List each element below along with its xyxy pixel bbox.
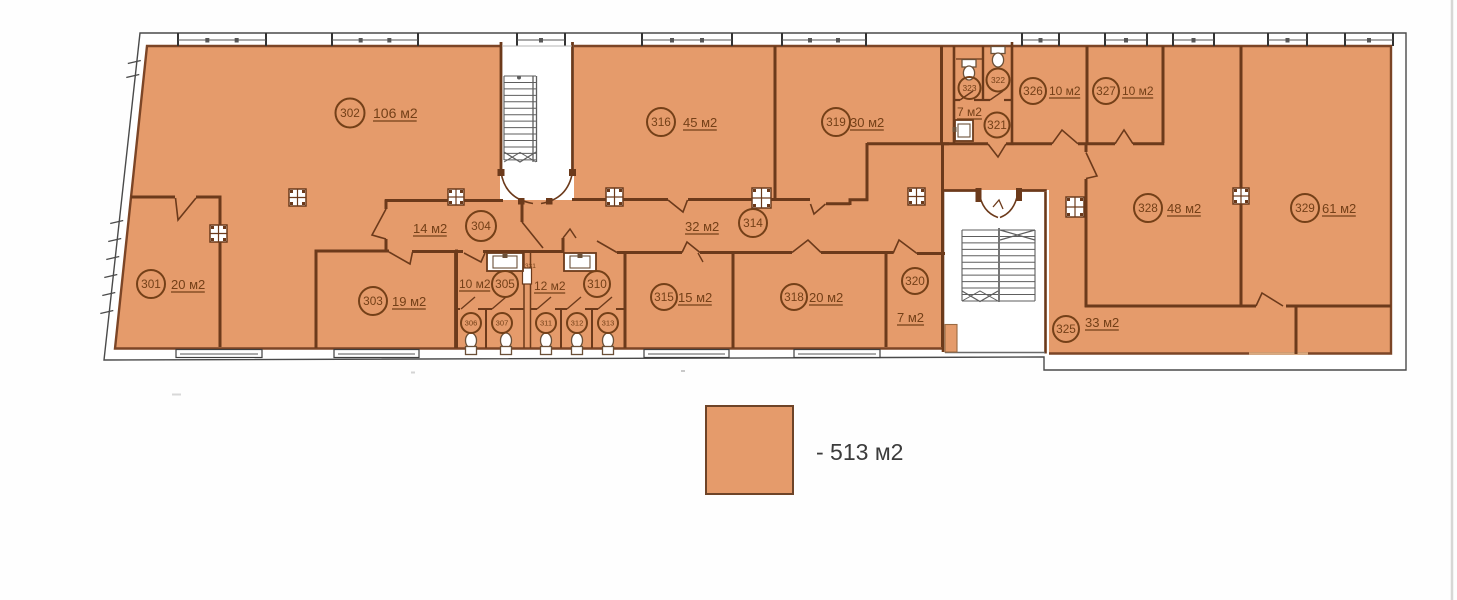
svg-text:10 м2: 10 м2	[1122, 84, 1154, 98]
svg-text:- 513 м2: - 513 м2	[816, 439, 903, 465]
svg-text:327: 327	[1096, 84, 1116, 98]
svg-text:310: 310	[587, 277, 607, 291]
svg-text:323: 323	[963, 83, 977, 93]
svg-text:19 м2: 19 м2	[392, 294, 426, 309]
svg-text:7 м2: 7 м2	[897, 310, 924, 325]
svg-text:14 м2: 14 м2	[413, 221, 447, 236]
svg-text:20 м2: 20 м2	[171, 277, 205, 292]
svg-text:326: 326	[1023, 84, 1043, 98]
svg-text:302: 302	[340, 106, 360, 120]
svg-text:322: 322	[991, 75, 1005, 85]
svg-text:15 м2: 15 м2	[678, 290, 712, 305]
svg-text:307: 307	[496, 319, 509, 328]
svg-text:325: 325	[1056, 322, 1076, 336]
svg-text:319: 319	[826, 115, 846, 129]
svg-text:106 м2: 106 м2	[373, 105, 418, 121]
svg-text:331: 331	[525, 263, 536, 270]
svg-text:30 м2: 30 м2	[850, 115, 884, 130]
svg-text:48 м2: 48 м2	[1167, 201, 1201, 216]
svg-text:12 м2: 12 м2	[534, 279, 566, 293]
svg-text:32 м2: 32 м2	[685, 219, 719, 234]
svg-text:311: 311	[540, 319, 552, 328]
svg-text:305: 305	[495, 277, 515, 291]
svg-text:10 м2: 10 м2	[1049, 84, 1081, 98]
svg-text:320: 320	[905, 274, 925, 288]
svg-text:20 м2: 20 м2	[809, 290, 843, 305]
svg-text:7 м2: 7 м2	[957, 105, 982, 119]
svg-text:306: 306	[465, 319, 478, 328]
svg-text:45 м2: 45 м2	[683, 115, 717, 130]
svg-text:314: 314	[743, 216, 763, 230]
svg-text:316: 316	[651, 115, 671, 129]
svg-text:312: 312	[571, 319, 584, 328]
svg-text:313: 313	[602, 319, 615, 328]
svg-text:318: 318	[784, 290, 804, 304]
svg-text:315: 315	[654, 290, 674, 304]
svg-text:328: 328	[1138, 201, 1158, 215]
svg-text:33 м2: 33 м2	[1085, 315, 1119, 330]
svg-text:61 м2: 61 м2	[1322, 201, 1356, 216]
svg-text:321: 321	[987, 118, 1007, 132]
svg-text:329: 329	[1295, 201, 1315, 215]
svg-text:10 м2: 10 м2	[459, 277, 491, 291]
svg-text:301: 301	[141, 277, 161, 291]
svg-text:303: 303	[363, 294, 383, 308]
svg-text:304: 304	[471, 219, 491, 233]
